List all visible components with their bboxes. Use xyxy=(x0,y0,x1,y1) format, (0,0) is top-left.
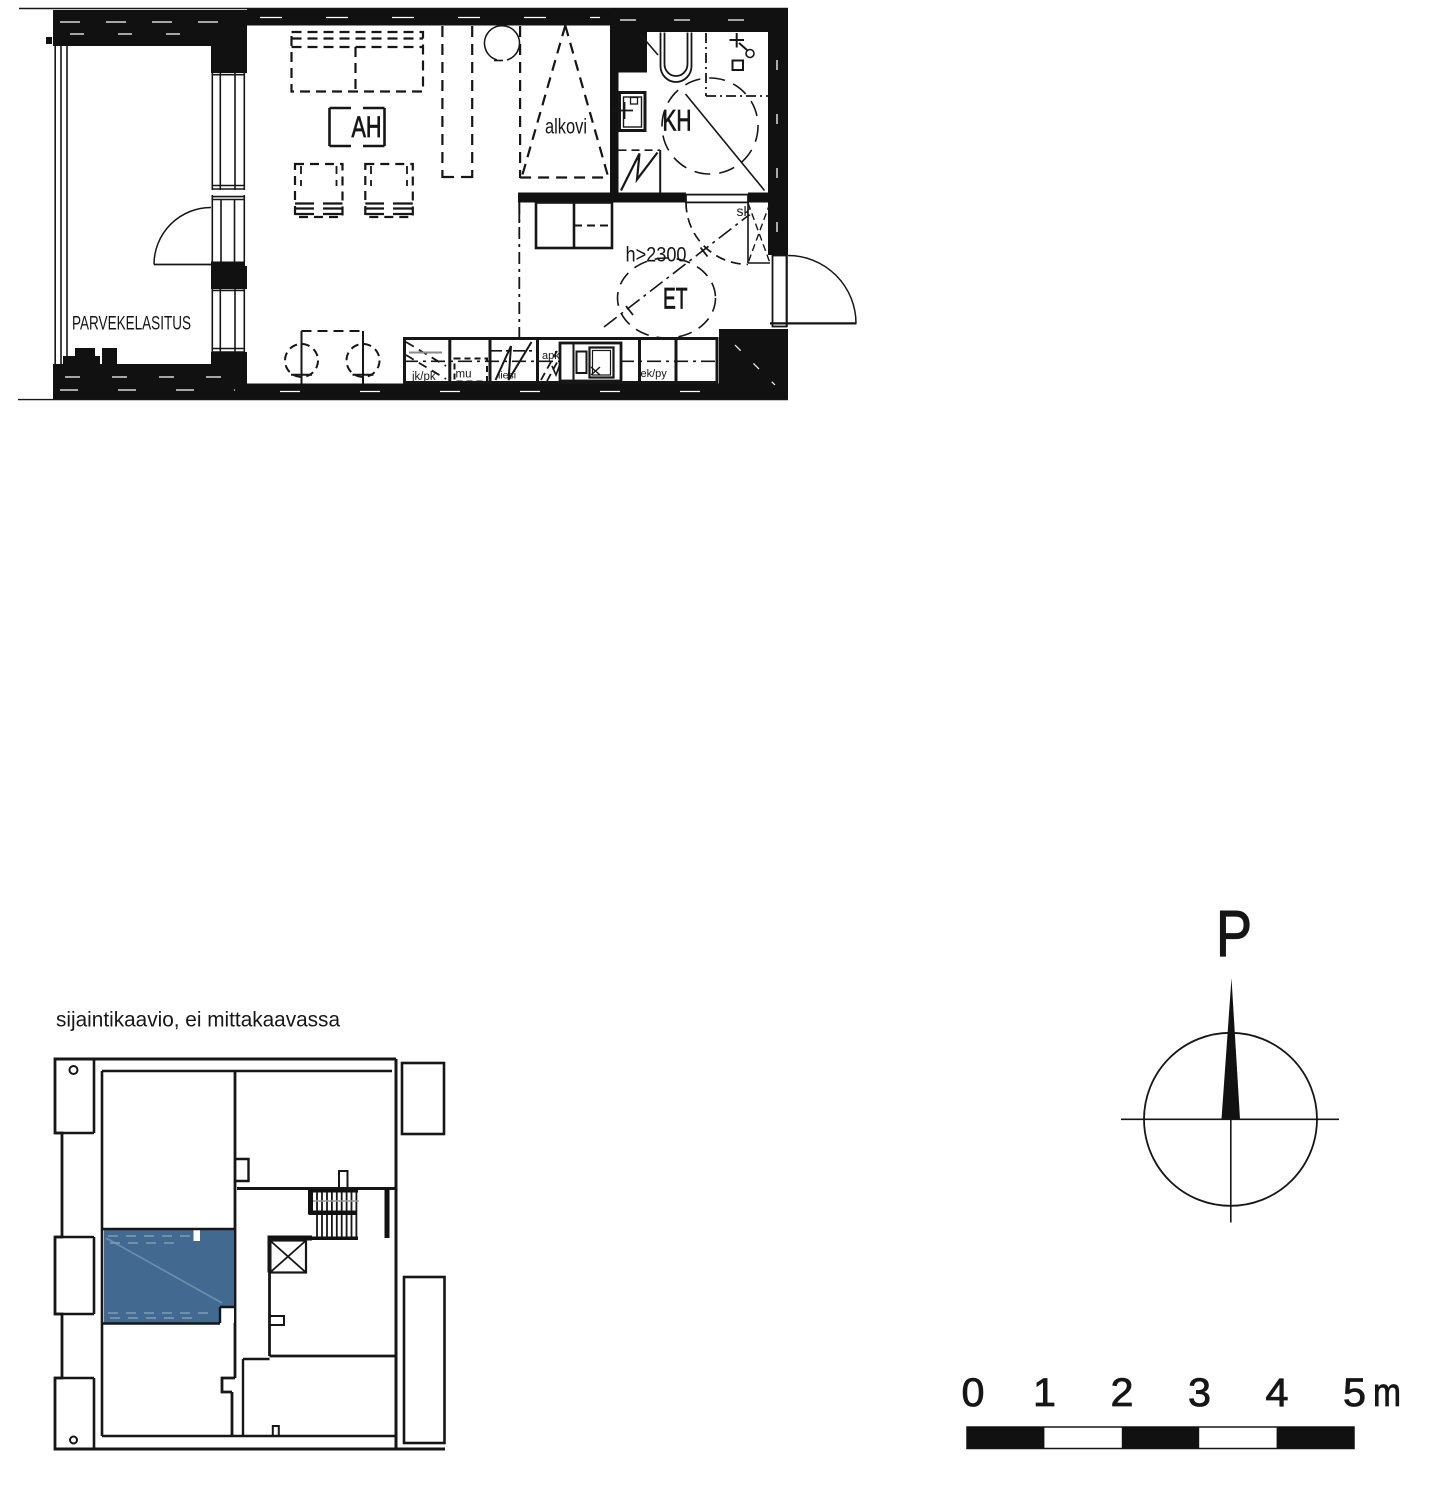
svg-text:KH: KH xyxy=(663,105,692,138)
svg-text:ek/py: ek/py xyxy=(641,368,668,380)
svg-text:liesi: liesi xyxy=(498,370,516,382)
svg-text:0: 0 xyxy=(962,1371,985,1415)
svg-text:sijaintikaavio, ei mittakaavas: sijaintikaavio, ei mittakaavassa xyxy=(56,1009,340,1032)
svg-text:h>2300: h>2300 xyxy=(626,244,687,267)
svg-text:2: 2 xyxy=(1111,1371,1134,1415)
svg-text:PARVEKELASITUS: PARVEKELASITUS xyxy=(72,314,191,335)
svg-text:ET: ET xyxy=(663,283,688,316)
svg-text:mu: mu xyxy=(456,369,472,381)
svg-text:4: 4 xyxy=(1266,1371,1289,1415)
svg-text:1: 1 xyxy=(1033,1371,1056,1415)
svg-text:sk: sk xyxy=(737,203,752,219)
svg-text:3: 3 xyxy=(1188,1371,1211,1415)
svg-text:jk/pk: jk/pk xyxy=(411,371,436,383)
svg-text:alkovi: alkovi xyxy=(545,116,587,139)
svg-text:P: P xyxy=(1216,897,1252,970)
svg-text:m: m xyxy=(1373,1371,1401,1415)
svg-text:apk: apk xyxy=(542,350,560,362)
svg-text:AH: AH xyxy=(352,111,382,144)
svg-text:5: 5 xyxy=(1343,1371,1366,1415)
